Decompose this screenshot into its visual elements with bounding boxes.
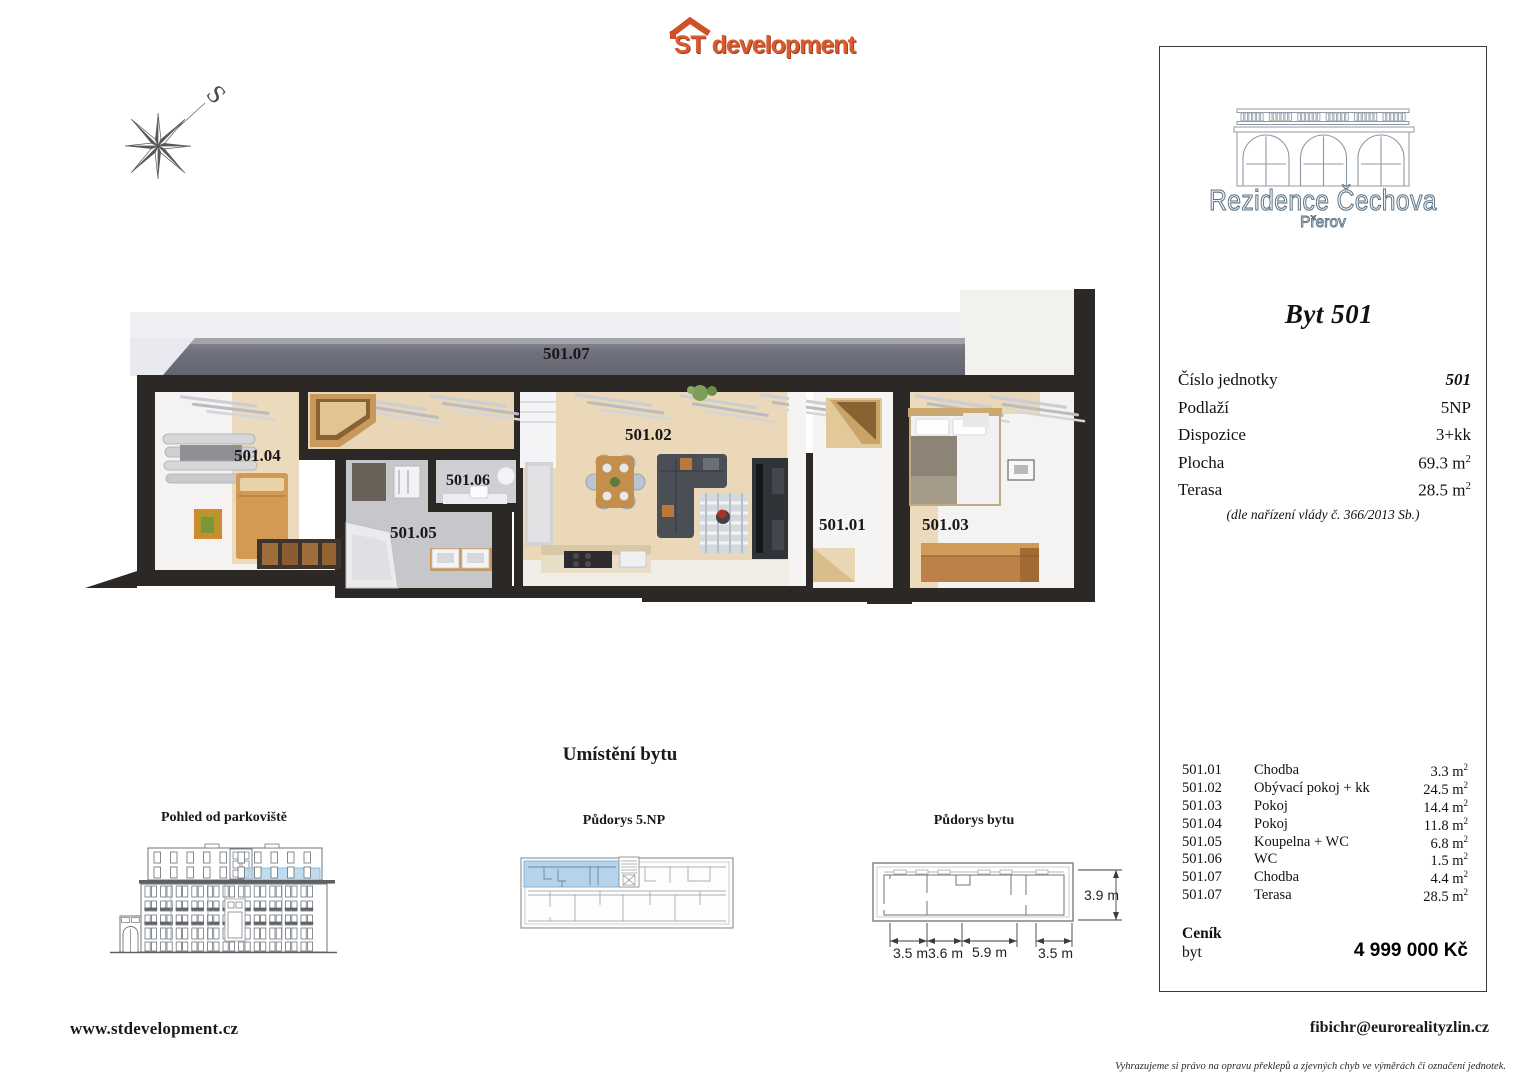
svg-text:501.02: 501.02 <box>625 425 672 444</box>
svg-text:3.5 m: 3.5 m <box>893 945 928 961</box>
svg-text:5.9 m: 5.9 m <box>972 944 1007 960</box>
svg-text:501.04: 501.04 <box>234 446 281 465</box>
svg-text:3.6 m: 3.6 m <box>928 945 963 961</box>
svg-text:3.9 m: 3.9 m <box>1084 887 1119 903</box>
svg-text:501.06: 501.06 <box>446 472 490 489</box>
svg-text:501.01: 501.01 <box>819 515 866 534</box>
svg-text:501.03: 501.03 <box>922 515 969 534</box>
svg-text:501.07: 501.07 <box>543 344 590 363</box>
svg-text:501.05: 501.05 <box>390 523 437 542</box>
svg-text:3.5 m: 3.5 m <box>1038 945 1073 961</box>
